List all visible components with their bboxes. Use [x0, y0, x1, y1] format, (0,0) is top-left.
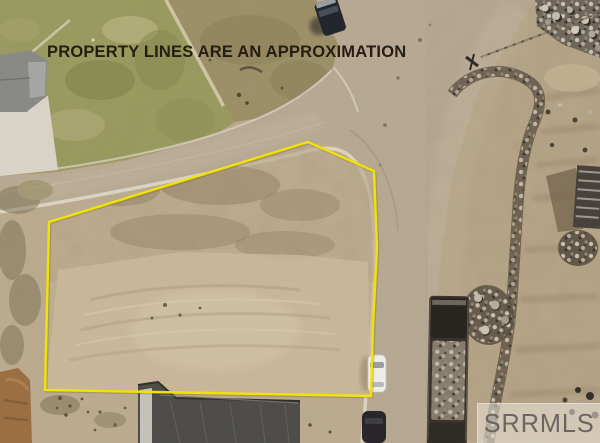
watermark-text: SRRMLS — [484, 408, 595, 439]
disclaimer-text: PROPERTY LINES ARE AN APPROXIMATION — [47, 43, 406, 62]
photo-grain — [0, 0, 600, 443]
aerial-photo — [0, 0, 600, 443]
listing-photo: PROPERTY LINES ARE AN APPROXIMATION SRRM… — [0, 0, 600, 443]
watermark-panel: SRRMLS — [477, 403, 600, 443]
